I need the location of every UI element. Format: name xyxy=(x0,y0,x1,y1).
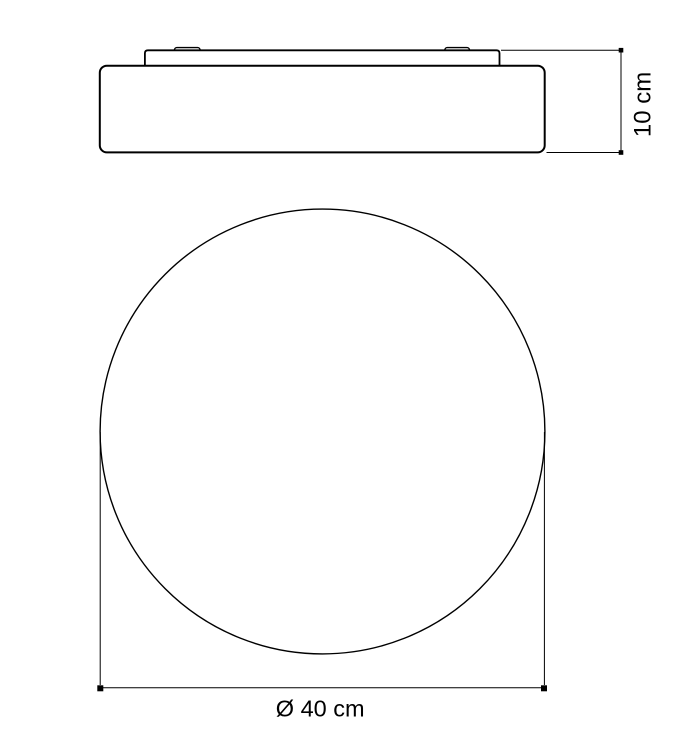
svg-text:Ø 40 cm: Ø 40 cm xyxy=(276,696,365,722)
svg-text:10 cm: 10 cm xyxy=(629,72,656,137)
